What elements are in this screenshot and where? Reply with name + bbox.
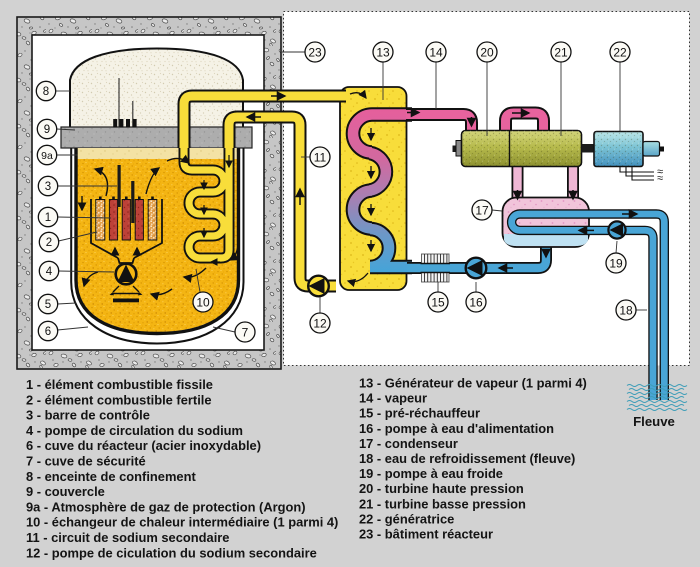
svg-text:3: 3 [45, 181, 51, 193]
svg-text:20: 20 [480, 46, 494, 60]
svg-text:23: 23 [308, 46, 322, 60]
svg-text:16: 16 [469, 296, 483, 310]
svg-text:22: 22 [613, 46, 627, 60]
svg-text:9 - couvercle: 9 - couvercle [26, 484, 105, 499]
svg-text:1 - élément combustible fissil: 1 - élément combustible fissile [26, 377, 213, 392]
svg-text:7 - cuve de sécurité: 7 - cuve de sécurité [26, 454, 146, 469]
svg-text:5: 5 [45, 299, 51, 311]
svg-text:4 - pompe de circulation du so: 4 - pompe de circulation du sodium [26, 423, 243, 438]
svg-text:10: 10 [196, 296, 210, 310]
svg-text:2 - élément combustible fertil: 2 - élément combustible fertile [26, 392, 212, 407]
svg-text:2: 2 [46, 237, 52, 249]
svg-text:14 - vapeur: 14 - vapeur [359, 391, 427, 406]
svg-text:14: 14 [429, 46, 443, 60]
svg-text:21 - turbine basse pression: 21 - turbine basse pression [359, 496, 526, 511]
svg-text:10 - échangeur de chaleur inte: 10 - échangeur de chaleur intermédiaire … [26, 515, 338, 530]
svg-text:16 - pompe à eau d'alimentatio: 16 - pompe à eau d'alimentation [359, 421, 554, 436]
svg-text:6 - cuve du réacteur (acier in: 6 - cuve du réacteur (acier inoxydable) [26, 438, 261, 453]
svg-text:9: 9 [44, 124, 50, 136]
svg-text:23 - bâtiment réacteur: 23 - bâtiment réacteur [359, 527, 493, 542]
svg-text:Fleuve: Fleuve [633, 414, 675, 429]
svg-text:13: 13 [376, 46, 390, 60]
svg-text:1: 1 [45, 212, 51, 224]
svg-text:≈: ≈ [657, 173, 663, 185]
svg-text:8 - enceinte de confinement: 8 - enceinte de confinement [26, 469, 196, 484]
svg-text:8: 8 [43, 86, 49, 98]
svg-text:17 - condenseur: 17 - condenseur [359, 436, 458, 451]
svg-text:13 - Générateur de vapeur (1 p: 13 - Générateur de vapeur (1 parmi 4) [359, 376, 587, 391]
svg-text:7: 7 [242, 326, 249, 340]
svg-text:15 - pré-réchauffeur: 15 - pré-réchauffeur [359, 406, 480, 421]
svg-text:18 - eau de refroidissement (f: 18 - eau de refroidissement (fleuve) [359, 451, 575, 466]
svg-text:19: 19 [609, 257, 623, 271]
svg-text:11 - circuit de sodium seconda: 11 - circuit de sodium secondaire [26, 530, 229, 545]
svg-text:12: 12 [313, 317, 327, 331]
svg-text:21: 21 [554, 46, 568, 60]
svg-text:9a - Atmosphère de gaz de prot: 9a - Atmosphère de gaz de protection (Ar… [26, 499, 306, 514]
svg-text:9a: 9a [41, 150, 53, 162]
svg-text:4: 4 [46, 266, 53, 278]
svg-text:12 - pompe de ciculation du so: 12 - pompe de ciculation du sodium secon… [26, 545, 317, 560]
svg-text:18: 18 [619, 304, 633, 318]
svg-text:6: 6 [45, 326, 51, 338]
svg-text:17: 17 [475, 204, 489, 218]
svg-text:22 - génératrice: 22 - génératrice [359, 511, 454, 526]
svg-text:19 - pompe à eau froide: 19 - pompe à eau froide [359, 466, 503, 481]
svg-text:3 - barre de contrôle: 3 - barre de contrôle [26, 408, 150, 423]
svg-text:15: 15 [431, 296, 445, 310]
svg-text:11: 11 [314, 151, 327, 165]
svg-text:20 - turbine haute pression: 20 - turbine haute pression [359, 481, 524, 496]
